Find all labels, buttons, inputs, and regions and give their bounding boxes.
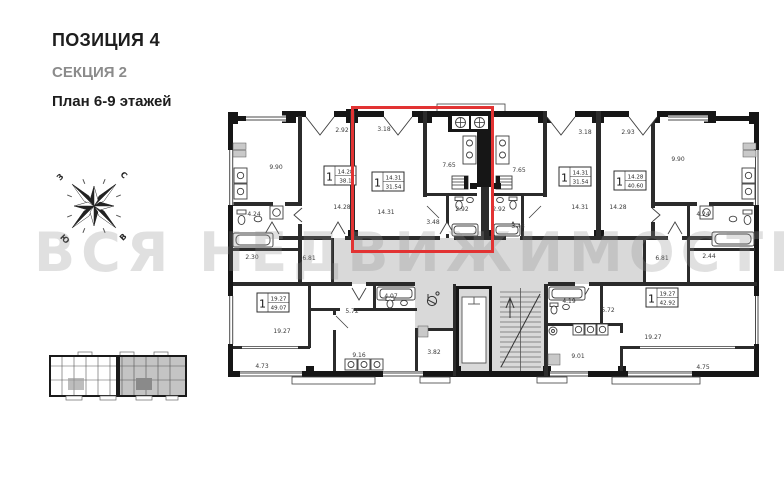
room-area-label: 6.81 (655, 255, 669, 262)
svg-text:40.60: 40.60 (628, 184, 644, 190)
room-area-label: 6.81 (302, 255, 316, 262)
room-area-label: 3.82 (427, 349, 441, 356)
room-area-label: 9.16 (352, 352, 366, 359)
highlighted-apartment-outline (351, 106, 494, 253)
room-area-label: 19.27 (644, 334, 661, 341)
room-area-label: 14.28 (609, 204, 626, 211)
room-area-label: 9.90 (269, 164, 283, 171)
room-area-label: 14.28 (333, 204, 350, 211)
svg-text:1: 1 (259, 298, 266, 311)
svg-text:1: 1 (326, 171, 333, 184)
room-area-label: 3.18 (578, 129, 592, 136)
room-area-label: 2.92 (335, 127, 349, 134)
room-area-label: 2.44 (702, 253, 716, 260)
room-area-label: 4.24 (696, 211, 710, 218)
room-area-label: 7.65 (512, 167, 526, 174)
room-area-label: 5.72 (345, 308, 359, 315)
svg-text:31.54: 31.54 (573, 180, 589, 186)
svg-text:38.1: 38.1 (339, 179, 351, 185)
room-area-label: 4.75 (696, 364, 710, 371)
svg-text:14.31: 14.31 (573, 171, 589, 177)
room-area-label: 3.48 (511, 223, 525, 230)
room-area-label: 4.73 (255, 363, 269, 370)
room-area-label: 4.24 (247, 211, 261, 218)
balcony-railings (292, 377, 700, 384)
room-area-label: 5.72 (601, 307, 615, 314)
room-area-label: 2.30 (245, 254, 259, 261)
svg-text:14.28: 14.28 (628, 175, 644, 181)
room-area-label: 4.19 (562, 298, 576, 305)
apartment-label: 1 19.27 49.07 (257, 293, 289, 312)
page: ПОЗИЦИЯ 4 СЕКЦИЯ 2 План 6-9 этажей С В Ю… (0, 0, 784, 500)
room-area-label: 9.90 (671, 156, 685, 163)
svg-text:19.27: 19.27 (271, 297, 287, 303)
room-area-label: 14.31 (571, 204, 588, 211)
corridor-fill (334, 238, 643, 376)
room-area-label: 4.07 (384, 293, 398, 300)
svg-text:19.27: 19.27 (660, 292, 676, 298)
svg-text:1: 1 (648, 293, 655, 306)
svg-text:1: 1 (616, 176, 623, 189)
apartment-label: 1 19.27 42.92 (646, 288, 678, 307)
apartment-label: 1 14.28 40.60 (614, 171, 646, 190)
svg-text:42.92: 42.92 (660, 301, 676, 307)
room-area-label: 2.93 (621, 129, 635, 136)
apartment-label: 1 14.31 31.54 (559, 167, 591, 186)
svg-text:49.07: 49.07 (271, 306, 287, 312)
room-area-label: 2.92 (492, 206, 506, 213)
svg-text:1: 1 (561, 172, 568, 185)
room-area-label: 19.27 (273, 328, 290, 335)
room-area-label: 9.01 (571, 353, 585, 360)
